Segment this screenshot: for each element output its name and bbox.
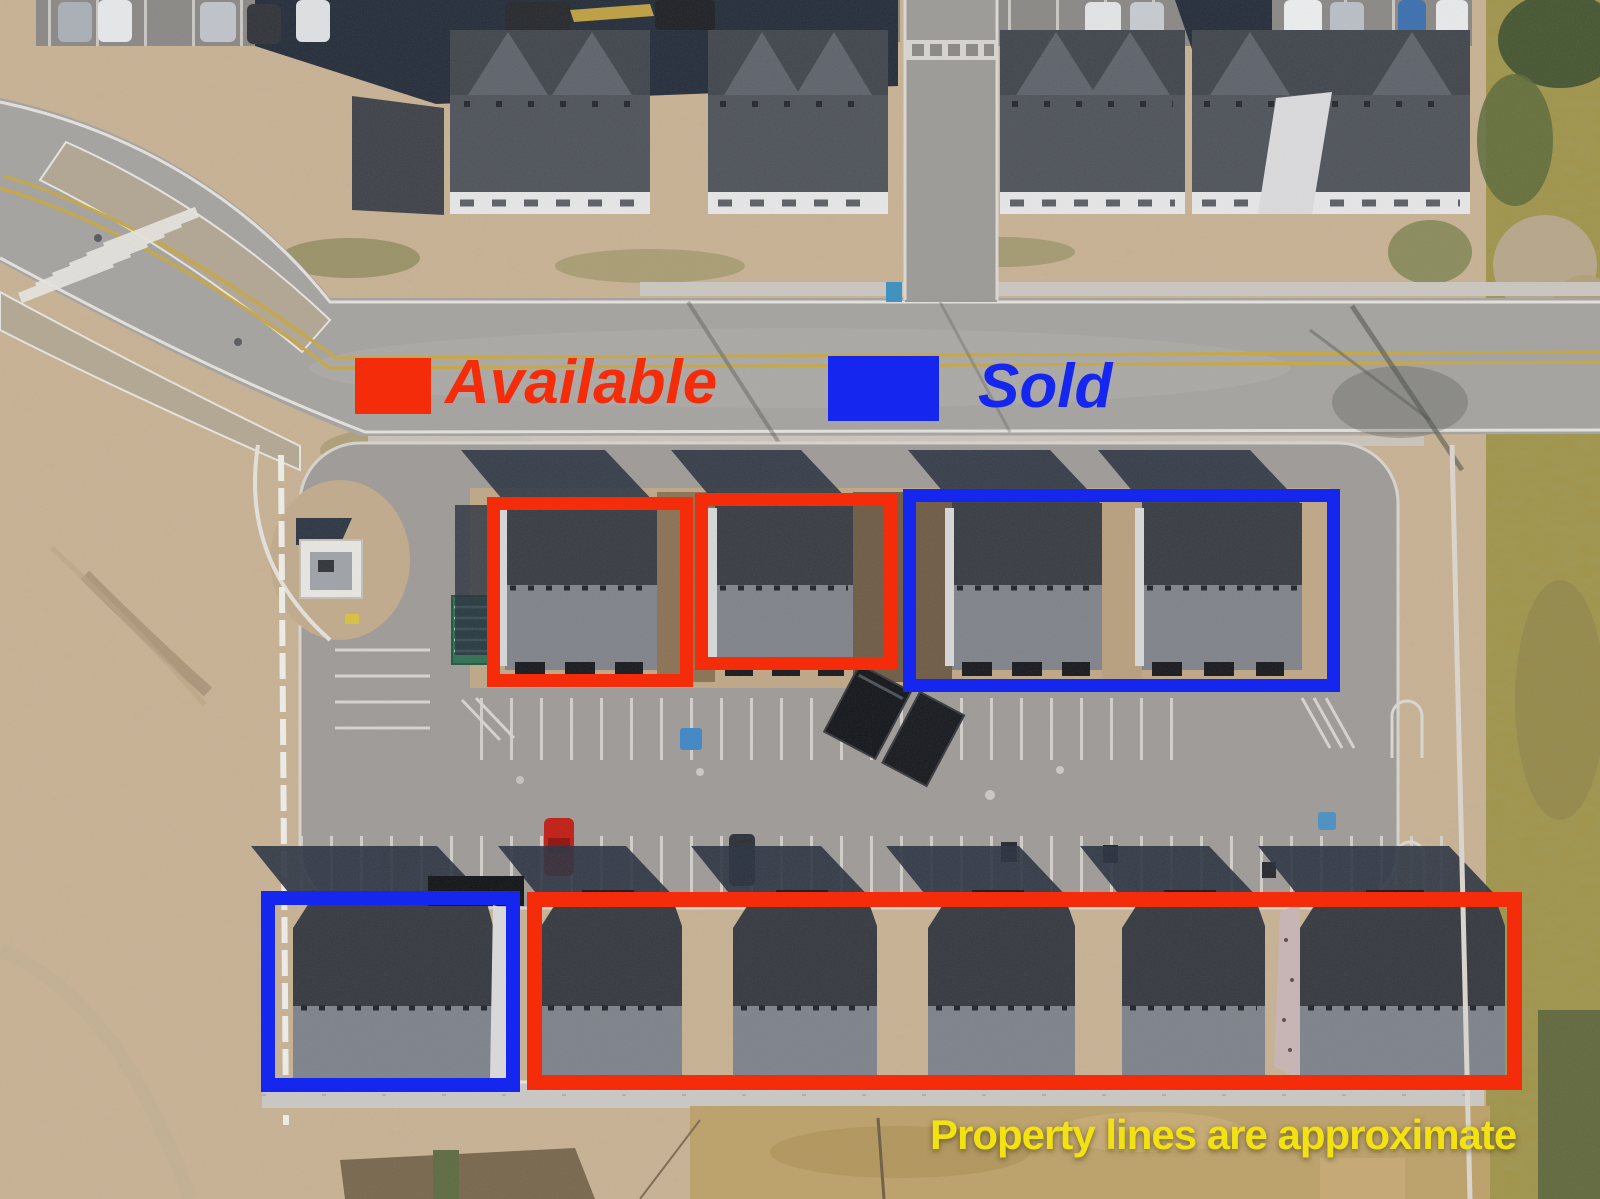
legend-available-label: Available <box>445 352 717 414</box>
outline-bottom-left-unit <box>261 891 520 1092</box>
outline-center-units-sold-pair <box>903 489 1340 692</box>
legend-sold-label: Sold <box>978 356 1112 418</box>
outline-center-unit-1 <box>487 497 693 687</box>
outline-center-unit-2 <box>695 493 897 670</box>
aerial-listing-image: Available Sold Property lines are approx… <box>0 0 1600 1199</box>
disclaimer-caption: Property lines are approximate <box>930 1114 1516 1156</box>
legend-sold-swatch <box>828 356 939 421</box>
outline-bottom-row-units <box>527 892 1522 1090</box>
legend-available-swatch <box>355 358 431 414</box>
